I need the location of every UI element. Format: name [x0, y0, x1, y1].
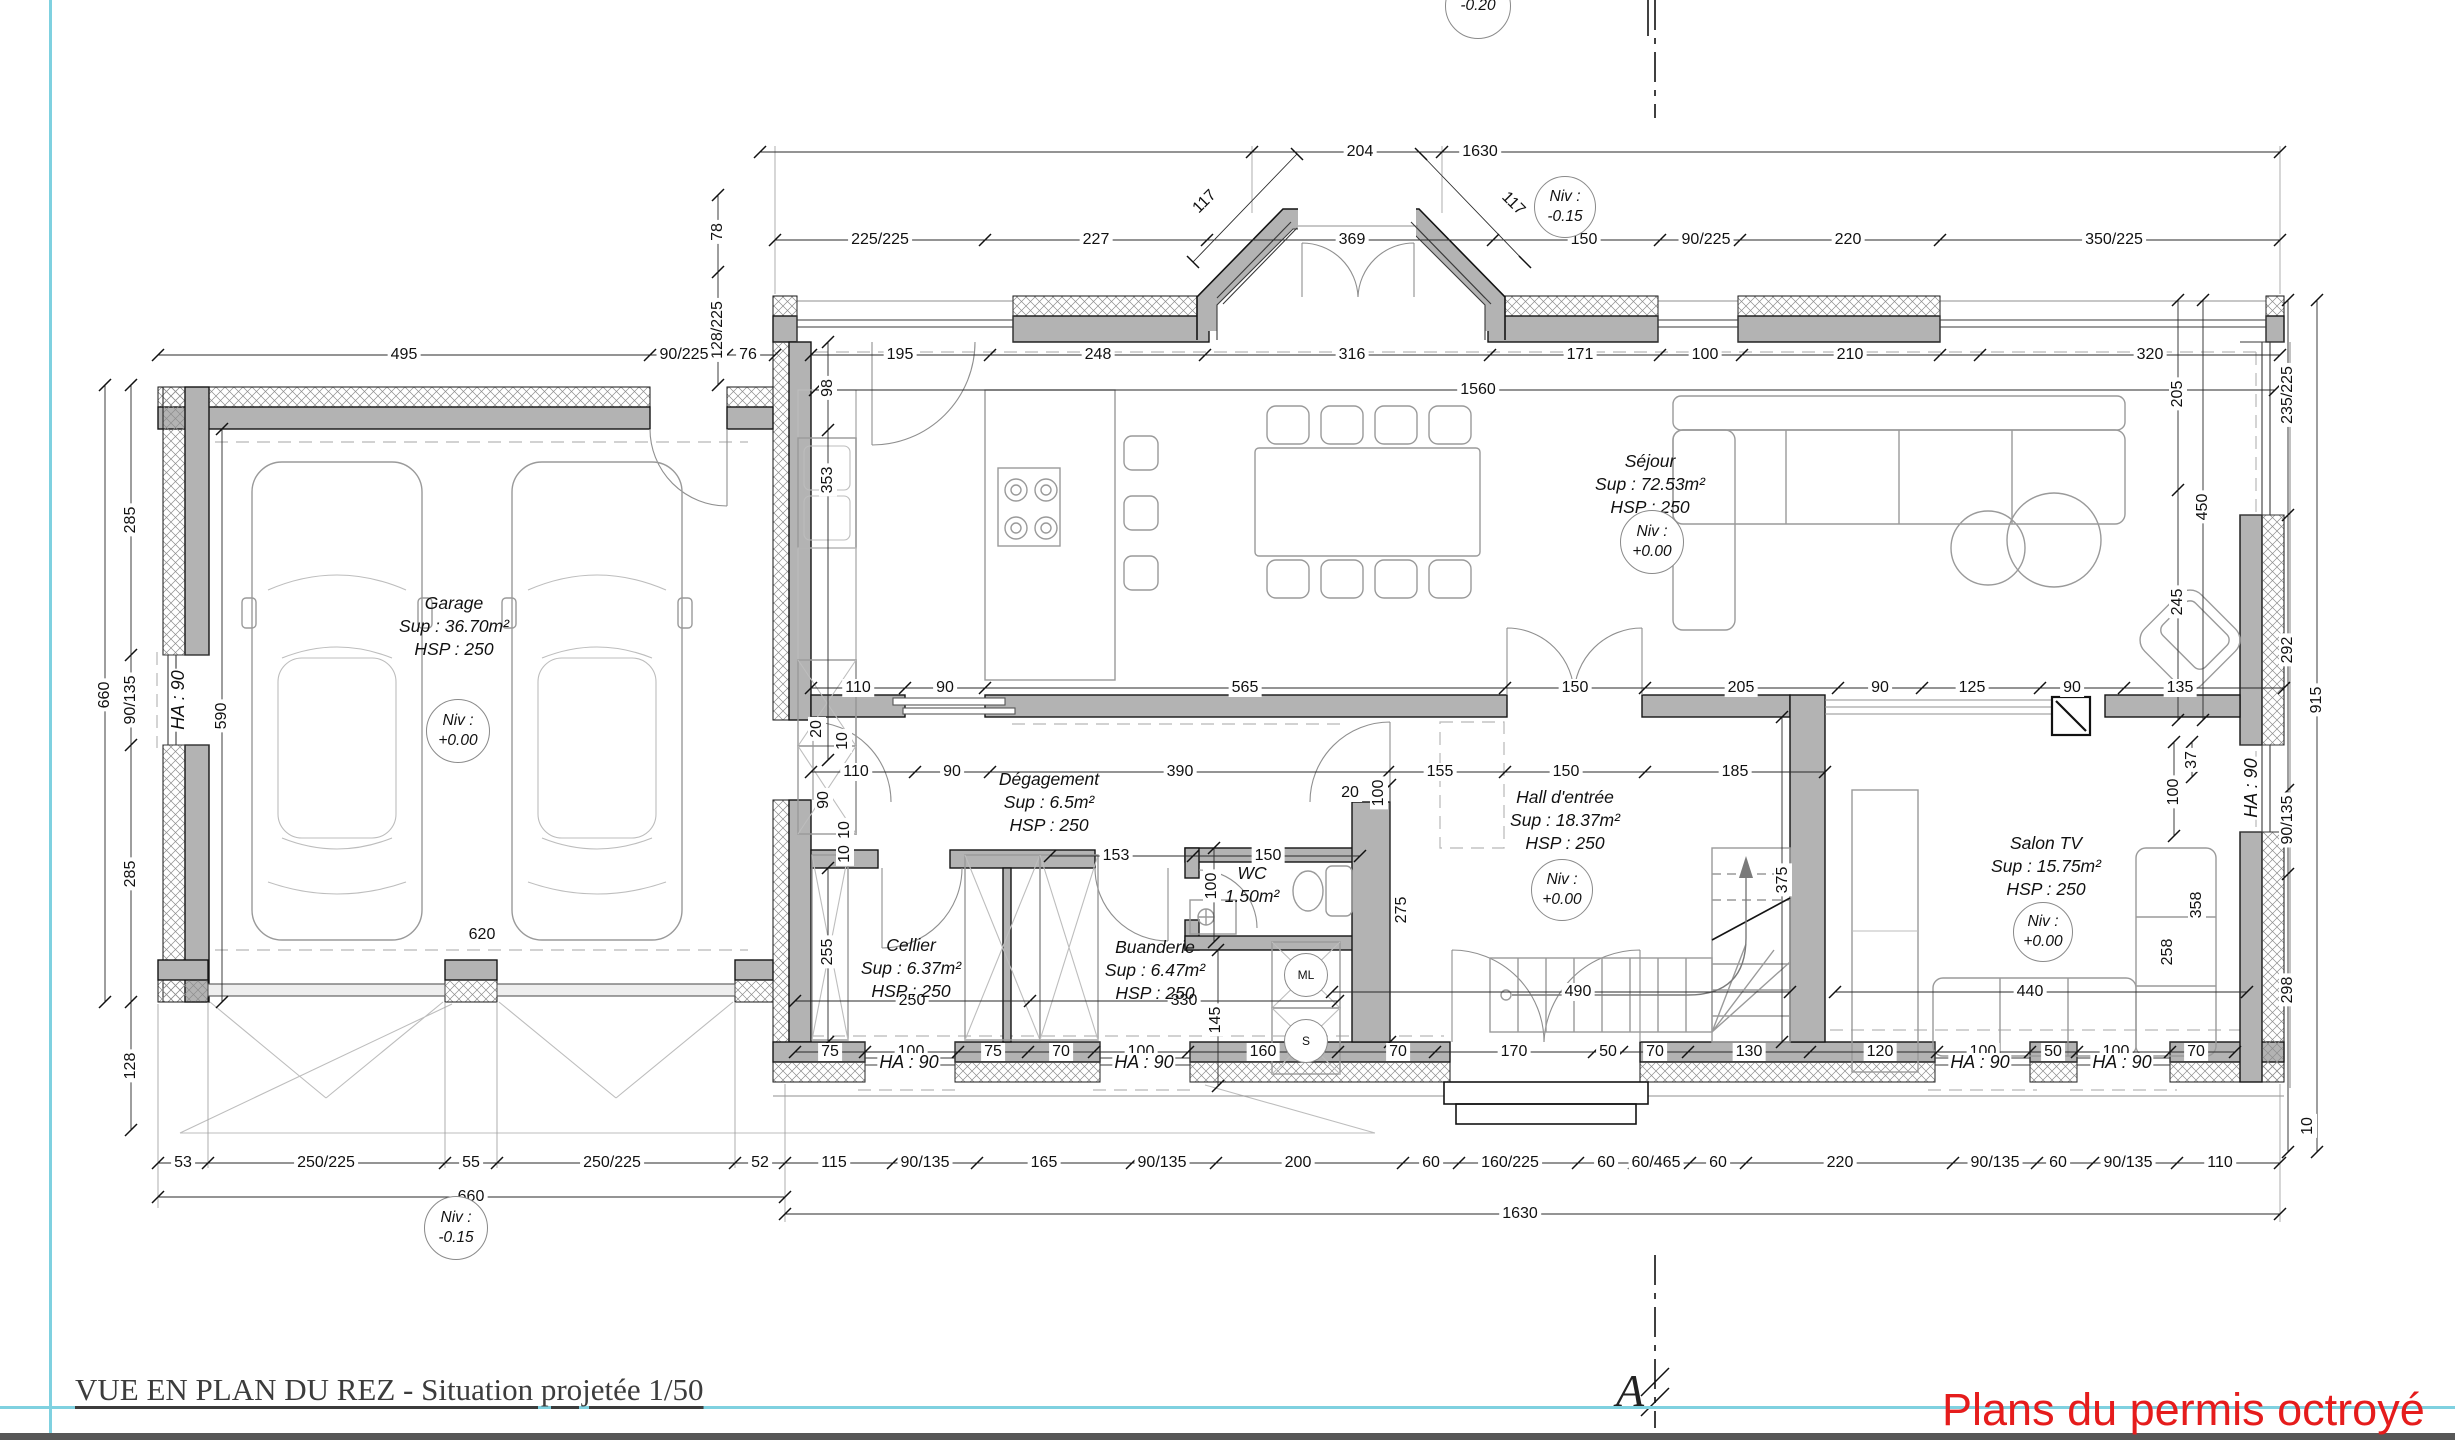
room-info: Sup : 72.53m²	[1595, 473, 1705, 496]
dimension-label: 50	[1596, 1043, 1620, 1061]
dimension-label: 205	[2169, 378, 2187, 411]
room-info: HSP : 250	[399, 638, 509, 661]
room-label: BuanderieSup : 6.47m²HSP : 250	[1105, 936, 1205, 1004]
room-info: 1.50m²	[1225, 885, 1279, 908]
dimension-label: 369	[1336, 231, 1369, 249]
dimension-label: 160	[1247, 1043, 1280, 1061]
dimension-label: 90/225	[1679, 231, 1734, 249]
dimension-label: 153	[1100, 847, 1133, 865]
room-info: Sup : 18.37m²	[1510, 809, 1620, 832]
room-name: Garage	[399, 592, 509, 615]
level-value: +0.00	[2023, 932, 2062, 952]
floor-plan-canvas: 2041630117117225/22522736915090/22522035…	[0, 0, 2455, 1440]
dimension-label: 110	[2204, 1154, 2236, 1172]
dimension-label: 37	[2183, 748, 2201, 772]
room-info: Sup : 6.37m²	[861, 957, 961, 980]
level-value: Niv :	[441, 1208, 472, 1228]
room-info: HSP : 250	[861, 980, 961, 1003]
dimension-label: 125	[1956, 679, 1989, 697]
level-marker: Niv :-0.15	[1534, 176, 1596, 238]
dimension-label: 70	[2184, 1043, 2208, 1061]
toilet-icon	[1293, 866, 1352, 916]
dimension-label: 440	[2014, 983, 2047, 1001]
dimension-label: 130	[1733, 1043, 1766, 1061]
room-name: Séjour	[1595, 450, 1705, 473]
level-value: +0.00	[438, 731, 477, 751]
level-marker: Niv :+0.00	[426, 699, 490, 763]
dimension-label: 20	[1338, 784, 1362, 802]
level-value: Niv :	[2028, 912, 2059, 932]
dimension-label: 100	[1689, 346, 1722, 364]
level-value: -0.15	[1547, 207, 1582, 227]
dimension-label: 60	[1706, 1154, 1730, 1172]
dimension-label: 358	[2188, 889, 2206, 922]
room-info: HSP : 250	[1991, 878, 2101, 901]
dimension-label: 195	[884, 346, 917, 364]
dimension-label: 135	[2164, 679, 2197, 697]
dimension-label: 110	[840, 763, 872, 781]
dimension-label: 90/135	[898, 1154, 953, 1172]
room-label: DégagementSup : 6.5m²HSP : 250	[999, 768, 1099, 836]
dimension-label: 565	[1229, 679, 1262, 697]
dimension-label: 50	[2041, 1043, 2065, 1061]
dimension-label: 255	[819, 936, 837, 969]
dimension-label: 185	[1719, 763, 1752, 781]
dimension-label: 204	[1344, 143, 1377, 161]
dimension-label: 78	[709, 220, 727, 244]
room-info: Sup : 15.75m²	[1991, 855, 2101, 878]
dimension-label: 200	[1282, 1154, 1315, 1172]
dimension-label: 90/135	[122, 673, 140, 728]
entrance-steps	[1444, 1082, 1648, 1124]
dimension-label: 275	[1393, 894, 1411, 927]
dimension-label: 915	[2308, 684, 2326, 717]
floor-plan-drawing	[0, 0, 2455, 1440]
dimension-label: 320	[2134, 346, 2167, 364]
level-value: +0.00	[1632, 542, 1671, 562]
dimension-label: 285	[122, 504, 140, 537]
furniture	[242, 390, 2247, 1074]
window-height-label: HA : 90	[2090, 1053, 2153, 1071]
dimension-label: 450	[2194, 491, 2212, 524]
dimension-label: 20	[808, 717, 826, 741]
dimension-label: 90	[933, 679, 957, 697]
dimension-label: 375	[1774, 864, 1792, 897]
dimension-label: 98	[819, 376, 837, 400]
room-info: Sup : 6.47m²	[1105, 959, 1205, 982]
appliance-label: S	[1284, 1019, 1328, 1063]
dimension-label: 110	[842, 679, 874, 697]
dimension-label: 155	[1424, 763, 1457, 781]
dimension-label: 53	[171, 1154, 195, 1172]
level-marker: Niv :+0.00	[1620, 510, 1684, 574]
dimension-label: 90	[940, 763, 964, 781]
dimension-label: 353	[819, 464, 837, 497]
dimension-label: 70	[1049, 1043, 1073, 1061]
dimension-label: 128	[122, 1050, 140, 1083]
level-value: Niv :	[443, 711, 474, 731]
room-name: Dégagement	[999, 768, 1099, 791]
level-marker: Niv :+0.00	[2013, 902, 2073, 962]
level-value: Niv :	[1637, 522, 1668, 542]
dimension-label: 258	[2159, 936, 2177, 969]
dimension-label: 115	[818, 1154, 850, 1172]
dimension-label: 100	[1203, 870, 1221, 903]
level-marker: Niv :-0.15	[424, 1196, 488, 1260]
page-edge-line-left	[49, 0, 52, 1440]
dimension-label: 235/225	[2279, 363, 2297, 427]
dimension-label: 90/135	[1968, 1154, 2023, 1172]
window-height-label: HA : 90	[2242, 756, 2260, 819]
dimension-label: 52	[748, 1154, 772, 1172]
room-info: Sup : 6.5m²	[999, 791, 1099, 814]
dimension-label: 75	[818, 1043, 842, 1061]
room-label: Salon TVSup : 15.75m²HSP : 250	[1991, 832, 2101, 900]
room-label: Hall d'entréeSup : 18.37m²HSP : 250	[1510, 786, 1620, 854]
dimension-label: 90/225	[657, 346, 712, 364]
dimension-label: 60/465	[1629, 1154, 1684, 1172]
dimension-label: 90/135	[2279, 793, 2297, 848]
dimension-label: 90/135	[2101, 1154, 2156, 1172]
dimension-label: 60	[2046, 1154, 2070, 1172]
dimension-label: 620	[466, 926, 499, 944]
room-info: Sup : 36.70m²	[399, 615, 509, 638]
dimension-label: 60	[1419, 1154, 1443, 1172]
level-value: -0.20	[1460, 0, 1495, 16]
dimension-label: 10	[2299, 1114, 2317, 1138]
room-name: Cellier	[861, 934, 961, 957]
dimension-label: 160/225	[1478, 1154, 1542, 1172]
dimension-label: 350/225	[2082, 231, 2146, 249]
room-name: Hall d'entrée	[1510, 786, 1620, 809]
stair-start-marker	[1501, 990, 1511, 1000]
window-height-label: HA : 90	[877, 1053, 940, 1071]
dimension-label: 171	[1564, 346, 1597, 364]
level-value: Niv :	[1547, 870, 1578, 890]
dimension-label: 248	[1082, 346, 1115, 364]
dimension-label: 205	[1725, 679, 1758, 697]
window-height-label: HA : 90	[169, 668, 187, 731]
dimension-label: 76	[736, 346, 760, 364]
window-height-label: HA : 90	[1948, 1053, 2011, 1071]
room-name: Salon TV	[1991, 832, 2101, 855]
dimension-label: 390	[1164, 763, 1197, 781]
dimension-label: 220	[1832, 231, 1865, 249]
dimension-label: 70	[1386, 1043, 1410, 1061]
dimension-label: 298	[2279, 974, 2297, 1007]
dimension-label: 220	[1824, 1154, 1857, 1172]
window-height-label: HA : 90	[1112, 1053, 1175, 1071]
dimension-label: 1630	[1499, 1205, 1541, 1223]
kitchen-island	[985, 390, 1158, 680]
dimension-label: 70	[1643, 1043, 1667, 1061]
dimension-label: 660	[96, 679, 114, 712]
dimension-label: 90	[815, 788, 833, 812]
dimension-label: 90	[2060, 679, 2084, 697]
dimension-label: 1560	[1457, 381, 1499, 399]
dimension-label: 100	[1370, 777, 1388, 810]
dimension-label: 245	[2169, 586, 2187, 619]
room-label: SéjourSup : 72.53m²HSP : 250	[1595, 450, 1705, 518]
room-info: HSP : 250	[1510, 832, 1620, 855]
room-name: Buanderie	[1105, 936, 1205, 959]
dimension-label: 210	[1834, 346, 1867, 364]
dimension-label: 250/225	[294, 1154, 358, 1172]
level-value: -0.15	[438, 1228, 473, 1248]
duct-symbol	[2052, 697, 2090, 735]
dimension-label: 75	[981, 1043, 1005, 1061]
room-name: WC	[1225, 862, 1279, 885]
dimension-label: 128/225	[709, 298, 727, 362]
dimension-label: 10	[836, 842, 854, 866]
dimension-label: 1630	[1459, 143, 1501, 161]
dimension-label: 150	[1550, 763, 1583, 781]
section-marker-label: A	[1616, 1364, 1644, 1417]
appliance-label: ML	[1284, 953, 1328, 997]
dimension-label: 227	[1080, 231, 1113, 249]
room-label: GarageSup : 36.70m²HSP : 250	[399, 592, 509, 660]
dimension-label: 55	[459, 1154, 483, 1172]
dimension-label: 60	[1594, 1154, 1618, 1172]
dimension-label: 90	[1868, 679, 1892, 697]
level-value: Niv :	[1550, 187, 1581, 207]
drawing-title: VUE EN PLAN DU REZ - Situation projetée …	[75, 1372, 704, 1408]
dining-table	[1255, 406, 1480, 598]
dimension-label: 150	[1559, 679, 1592, 697]
dimension-label: 285	[122, 858, 140, 891]
dimension-label: 145	[1207, 1004, 1225, 1037]
room-label: CellierSup : 6.37m²HSP : 250	[861, 934, 961, 1002]
level-value: +0.00	[1542, 890, 1581, 910]
room-info: HSP : 250	[1105, 982, 1205, 1005]
dimension-label: 90/135	[1135, 1154, 1190, 1172]
room-info: HSP : 250	[999, 814, 1099, 837]
dimension-label: 590	[213, 700, 231, 733]
dimension-label: 292	[2279, 634, 2297, 667]
dimension-label: 316	[1336, 346, 1369, 364]
dimension-label: 10	[836, 818, 854, 842]
level-marker: Niv :+0.00	[1531, 859, 1593, 921]
dimension-label: 120	[1864, 1043, 1897, 1061]
dimension-label: 165	[1028, 1154, 1061, 1172]
dimension-label: 250/225	[580, 1154, 644, 1172]
dimension-label: 225/225	[848, 231, 912, 249]
dimension-label: 495	[388, 346, 421, 364]
dimension-label: 490	[1562, 983, 1595, 1001]
room-label: WC1.50m²	[1225, 862, 1279, 908]
sofa-sejour	[1673, 396, 2125, 630]
dimension-label: 170	[1498, 1043, 1531, 1061]
dimension-label: 100	[2165, 776, 2183, 809]
dimension-label: 10	[834, 729, 852, 753]
permit-stamp-text: Plans du permis octroyé	[1942, 1384, 2425, 1436]
